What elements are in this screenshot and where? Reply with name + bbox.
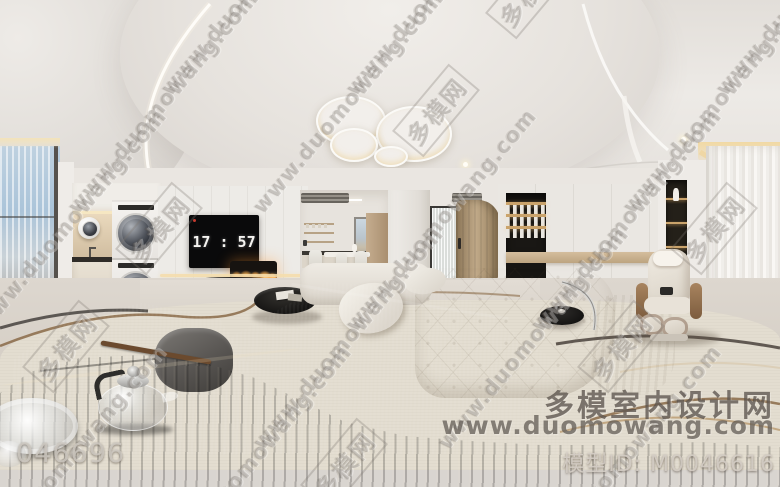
massage-chair-armrest [690,283,702,319]
massage-chair-seat [644,297,692,314]
washer-control-panel [118,205,154,210]
bookshelf-niche [506,193,546,253]
massage-chair-legrest [640,314,664,335]
figurine [673,188,679,201]
niche-shelf [666,246,687,248]
light-switch [303,240,307,246]
left-window-cove-light [0,138,60,148]
washer-door [116,213,156,253]
table-vase [352,244,357,252]
cup [558,309,565,313]
glass-door-frame [430,206,454,208]
niche-shelf [666,222,687,224]
kitchen-shelf-items [306,224,330,228]
faucet-spout [89,247,96,249]
tv-standby-led [193,219,196,222]
mini-washer-door [82,221,98,237]
ceiling-ring-light [330,128,378,162]
washing-machine [112,202,160,259]
machine-gap [112,258,160,260]
tv-clock-display: 17 : 57 [192,233,255,251]
ceiling-ring-light [374,146,408,167]
dryer-control-panel [118,263,154,268]
wall-mini-washer [78,217,100,239]
partition-handle [458,238,461,249]
massage-chair-base [650,334,688,341]
wood-accent-band [506,252,662,263]
massage-chair-panel [660,287,673,295]
downlight [681,137,686,142]
books [506,229,546,238]
kitchen-tall-cabinet [366,213,388,268]
downlight [463,162,468,167]
books [506,217,546,226]
left-window-frame-bar [0,216,58,218]
panorama-render: 17 : 57 [0,0,780,487]
books [506,205,546,214]
teapot-knob [127,366,140,377]
ac-vent [301,193,349,203]
massage-chair-headrest [653,251,683,266]
